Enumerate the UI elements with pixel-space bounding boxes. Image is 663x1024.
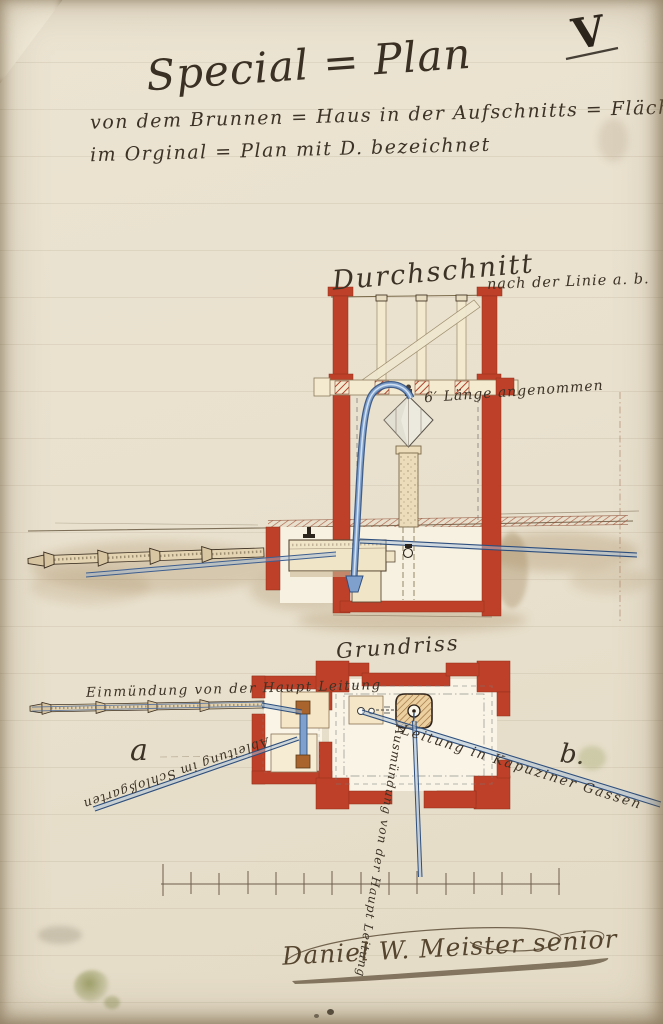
pump-valve-icon (404, 549, 413, 558)
house-right-wall-lower (482, 395, 501, 616)
plan-inlet-pipe (30, 699, 264, 715)
marker-b: b. (559, 739, 587, 771)
sheet-number: V (568, 6, 608, 59)
vault-floor (340, 601, 484, 612)
scale-bar (161, 864, 560, 896)
cross-section-drawing (28, 287, 650, 633)
marker-a: a (130, 733, 148, 768)
timber-frame (331, 295, 500, 394)
annex-blue-shaft (300, 708, 307, 758)
manuscript-page: V Special = Plan von dem Brunnen = Haus … (0, 0, 663, 1024)
house-left-wall-lower (333, 395, 350, 542)
red-posts (328, 287, 502, 384)
